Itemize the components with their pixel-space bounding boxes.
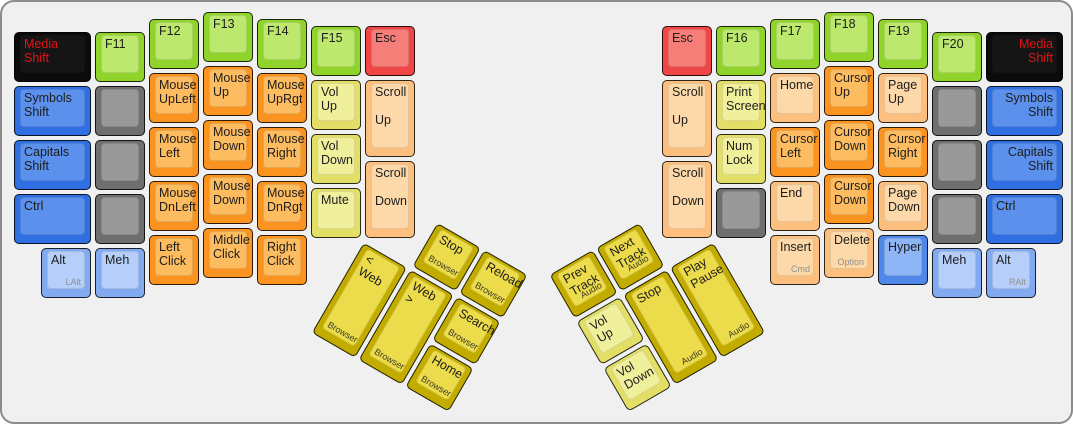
key-f15[interactable]: F15 (311, 26, 361, 76)
keycap-sublabel: Cmd (791, 265, 810, 274)
key-left-click[interactable]: Left Click (149, 235, 199, 285)
key-meh-right[interactable]: Meh (932, 248, 982, 298)
keycap-label: Alt (51, 253, 81, 267)
keycap-surface: Media Shift (992, 35, 1057, 73)
keycap-label: Meh (105, 253, 135, 267)
keycap-surface: F15 (317, 29, 355, 67)
keycap-sublabel: Browser (419, 374, 452, 398)
keycap-label: Stop (437, 232, 470, 259)
keycap-surface: Scroll Up (371, 83, 409, 148)
keycap-surface: Page Up (884, 76, 922, 114)
key-f13[interactable]: F13 (203, 12, 253, 62)
keycap-label: F15 (321, 31, 351, 45)
key-f20[interactable]: F20 (932, 32, 982, 82)
key-insert[interactable]: InsertCmd (770, 235, 820, 285)
keycap-label: Vol Down (321, 139, 351, 167)
keycap-label: Cursor Left (780, 132, 810, 160)
keycap-label: Vol Up (321, 85, 351, 113)
keycap-label: Scroll Down (672, 166, 702, 208)
key-alt-left[interactable]: AltLAlt (41, 248, 91, 298)
keycap-surface: Home (776, 76, 814, 114)
keycap-surface: Cursor Down (830, 177, 868, 215)
keycap-label: Home (780, 78, 810, 92)
key-mouse-down-2[interactable]: Mouse Down (203, 174, 253, 224)
keycap-label: F18 (834, 17, 864, 31)
key-blank[interactable] (95, 194, 145, 244)
keycap-surface: StopBrowser (422, 228, 474, 280)
key-media-shift-left[interactable]: Media Shift (14, 32, 91, 82)
key-esc-right[interactable]: Esc (662, 26, 712, 76)
key-f17[interactable]: F17 (770, 19, 820, 69)
keycap-label: Num Lock (726, 139, 756, 167)
key-mouse-right[interactable]: Mouse Right (257, 127, 307, 177)
keycap-surface: Right Click (263, 238, 301, 276)
keycap-label: Scroll Down (375, 166, 405, 208)
keycap-surface: AltRAlt (992, 251, 1030, 289)
key-cursor-down-2[interactable]: Cursor Down (824, 174, 874, 224)
key-end[interactable]: End (770, 181, 820, 231)
key-cursor-up[interactable]: Cursor Up (824, 66, 874, 116)
keycap-surface: Next TrackAudio (603, 228, 655, 280)
keycap-label: Meh (942, 253, 972, 267)
keycap-label: F20 (942, 37, 972, 51)
key-mouse-dnrgt[interactable]: Mouse DnRgt (257, 181, 307, 231)
key-esc-left[interactable]: Esc (365, 26, 415, 76)
keycap-label: Cursor Right (888, 132, 918, 160)
keycap-surface: F19 (884, 22, 922, 60)
key-f12[interactable]: F12 (149, 19, 199, 69)
keycap-surface (101, 143, 139, 181)
keycap-sublabel: Browser (446, 327, 479, 351)
keycap-label: Cursor Down (834, 179, 864, 207)
keycap-surface: HomeBrowser (415, 349, 467, 401)
key-f11[interactable]: F11 (95, 32, 145, 82)
keycap-label: Mouse Down (213, 179, 243, 207)
keycap-surface: F12 (155, 22, 193, 60)
keycap-surface: F11 (101, 35, 139, 73)
keycap-surface: DeleteOption (830, 231, 868, 269)
keycap-surface: Scroll Down (668, 164, 706, 229)
keycap-label: Cursor Down (834, 125, 864, 153)
keycap-sublabel: Audio (727, 320, 751, 339)
keycap-surface: Scroll Down (371, 164, 409, 229)
keycap-label: F13 (213, 17, 243, 31)
keycap-surface: Mouse Up (209, 69, 247, 107)
key-mouse-down[interactable]: Mouse Down (203, 120, 253, 170)
keycap-label: Mouse DnRgt (267, 186, 297, 214)
keycap-label: Reload (483, 259, 516, 286)
key-f18[interactable]: F18 (824, 12, 874, 62)
key-blank[interactable] (716, 188, 766, 238)
keycap-surface: ReloadBrowser (469, 255, 521, 307)
keycap-surface: Cursor Right (884, 130, 922, 168)
keycap-surface: Mouse UpLeft (155, 76, 193, 114)
keycap-label: Media Shift (24, 37, 81, 65)
key-scroll-down-right[interactable]: Scroll Down (662, 161, 712, 238)
keycap-label: Mute (321, 193, 351, 207)
keycap-surface: Vol Down (610, 349, 662, 401)
keycap-label: F11 (105, 37, 135, 51)
keycap-sublabel: Audio (680, 347, 704, 366)
keycap-label: Mouse UpLeft (159, 78, 189, 106)
keycap-label: Ctrl (24, 199, 81, 213)
keycap-surface: Cursor Up (830, 69, 868, 107)
keycap-surface: F20 (938, 35, 976, 73)
keycap-surface (722, 191, 760, 229)
keycap-surface: F17 (776, 22, 814, 60)
keycap-label: Right Click (267, 240, 297, 268)
keycap-label: Home (429, 352, 462, 379)
key-print-screen[interactable]: Print Screen (716, 80, 766, 130)
keycap-surface: Num Lock (722, 137, 760, 175)
keyboard-panel: Media ShiftF11F12F13F14F15EscSymbols Shi… (0, 0, 1073, 424)
keycap-surface: Symbols Shift (20, 89, 85, 127)
screenshot-root: { "keyboard": { "description_title": "Er… (0, 0, 1073, 424)
keycap-surface: AltLAlt (47, 251, 85, 289)
keycap-surface: Capitals Shift (20, 143, 85, 181)
key-f14[interactable]: F14 (257, 19, 307, 69)
key-cursor-down[interactable]: Cursor Down (824, 120, 874, 170)
keycap-surface: F18 (830, 15, 868, 53)
keycap-label: Cursor Up (834, 71, 864, 99)
keycap-label: Vol Down (615, 352, 655, 391)
keycap-label: Mouse Right (267, 132, 297, 160)
keycap-label: Hyper (888, 240, 918, 254)
key-mouse-uprgt[interactable]: Mouse UpRgt (257, 73, 307, 123)
keycap-surface: Scroll Up (668, 83, 706, 148)
keycap-surface: End (776, 184, 814, 222)
keycap-surface: Mouse Down (209, 123, 247, 161)
key-blank[interactable] (95, 140, 145, 190)
keycap-surface: Mouse Right (263, 130, 301, 168)
keycap-surface: Ctrl (992, 197, 1057, 235)
keycap-surface: Left Click (155, 238, 193, 276)
keycap-label: Stop (634, 279, 667, 306)
key-alt-right[interactable]: AltRAlt (986, 248, 1036, 298)
keycap-sublabel: Browser (373, 347, 406, 371)
key-page-up[interactable]: Page Up (878, 73, 928, 123)
keycap-surface (938, 197, 976, 235)
key-scroll-down-left[interactable]: Scroll Down (365, 161, 415, 238)
keycap-label: F16 (726, 31, 756, 45)
key-media-shift-right[interactable]: Media Shift (986, 32, 1063, 82)
keycap-label: Esc (375, 31, 405, 45)
key-cursor-left[interactable]: Cursor Left (770, 127, 820, 177)
key-mouse-dnleft[interactable]: Mouse DnLeft (149, 181, 199, 231)
keycap-label: Mouse Down (213, 125, 243, 153)
keycap-label: Symbols Shift (24, 91, 81, 119)
keycap-surface: Cursor Down (830, 123, 868, 161)
keycap-label: End (780, 186, 810, 200)
keycap-sublabel: Browser (326, 320, 359, 344)
keycap-label: Capitals Shift (24, 145, 81, 173)
keycap-label: F19 (888, 24, 918, 38)
keycap-surface: Hyper (884, 238, 922, 276)
keycap-label: Insert (780, 240, 810, 254)
key-mouse-upleft[interactable]: Mouse UpLeft (149, 73, 199, 123)
keycap-surface: Vol Down (317, 137, 355, 175)
keycap-surface: Mouse DnLeft (155, 184, 193, 222)
key-blank[interactable] (95, 86, 145, 136)
keycap-surface: Vol Up (317, 83, 355, 121)
key-scroll-up-left[interactable]: Scroll Up (365, 80, 415, 157)
keycap-label: Delete (834, 233, 864, 247)
key-mouse-up[interactable]: Mouse Up (203, 66, 253, 116)
keycap-label: Scroll Up (672, 85, 702, 127)
keycap-label: Scroll Up (375, 85, 405, 127)
keycap-sublabel: Browser (427, 253, 460, 277)
keycap-label: Page Up (888, 78, 918, 106)
keycap-surface: Print Screen (722, 83, 760, 121)
keycap-sublabel: RAlt (1009, 278, 1026, 287)
key-symbols-shift-left[interactable]: Symbols Shift (14, 86, 91, 136)
keycap-surface: F13 (209, 15, 247, 53)
keycap-surface: Middle Click (209, 231, 247, 269)
key-ctrl-right[interactable]: Ctrl (986, 194, 1063, 244)
key-delete[interactable]: DeleteOption (824, 228, 874, 278)
key-home[interactable]: Home (770, 73, 820, 123)
keycap-surface: InsertCmd (776, 238, 814, 276)
keycap-surface: Mute (317, 191, 355, 229)
key-blank[interactable] (932, 86, 982, 136)
keycap-label: Mouse Up (213, 71, 243, 99)
keycap-surface: Mouse Left (155, 130, 193, 168)
keycap-surface: Ctrl (20, 197, 85, 235)
keycap-surface (938, 89, 976, 127)
keycap-surface: F16 (722, 29, 760, 67)
keycap-surface (101, 89, 139, 127)
key-scroll-up-right[interactable]: Scroll Up (662, 80, 712, 157)
keycap-surface: Prev TrackAudio (556, 255, 608, 307)
key-meh-left[interactable]: Meh (95, 248, 145, 298)
keycap-surface: Cursor Left (776, 130, 814, 168)
keycap-label: Ctrl (996, 199, 1053, 213)
key-vol-up-left[interactable]: Vol Up (311, 80, 361, 130)
keycap-label: F17 (780, 24, 810, 38)
keycap-surface (938, 143, 976, 181)
key-hyper[interactable]: Hyper (878, 235, 928, 285)
keycap-label: Esc (672, 31, 702, 45)
keycap-surface: Mouse DnRgt (263, 184, 301, 222)
key-vol-down-left[interactable]: Vol Down (311, 134, 361, 184)
keycap-label: Play Pause (681, 252, 721, 291)
keycap-surface: Media Shift (20, 35, 85, 73)
keycap-label: F12 (159, 24, 189, 38)
keycap-label: Middle Click (213, 233, 243, 261)
key-middle-click[interactable]: Middle Click (203, 228, 253, 278)
key-mouse-left[interactable]: Mouse Left (149, 127, 199, 177)
keycap-surface: Meh (101, 251, 139, 289)
keycap-surface: Esc (668, 29, 706, 67)
keycap-label: Media Shift (996, 37, 1053, 65)
keycap-label: Mouse Left (159, 132, 189, 160)
keycap-label: < Web (356, 252, 396, 291)
key-num-lock[interactable]: Num Lock (716, 134, 766, 184)
key-blank[interactable] (932, 140, 982, 190)
keycap-label: Capitals Shift (996, 145, 1053, 173)
keycap-surface: Mouse Down (209, 177, 247, 215)
key-right-click[interactable]: Right Click (257, 235, 307, 285)
keycap-sublabel: LAlt (65, 278, 81, 287)
keycap-label: Symbols Shift (996, 91, 1053, 119)
keycap-label: Alt (996, 253, 1026, 267)
keycap-surface: Page Down (884, 184, 922, 222)
keycap-label: Vol Up (588, 306, 628, 345)
key-mute[interactable]: Mute (311, 188, 361, 238)
key-ctrl-left[interactable]: Ctrl (14, 194, 91, 244)
key-f19[interactable]: F19 (878, 19, 928, 69)
keycap-label: Web > (403, 279, 443, 318)
key-capitals-shift-left[interactable]: Capitals Shift (14, 140, 91, 190)
keycap-surface: Capitals Shift (992, 143, 1057, 181)
keycap-sublabel: Option (837, 258, 864, 267)
keycap-label: Mouse DnLeft (159, 186, 189, 214)
keycap-surface (101, 197, 139, 235)
key-capitals-shift-right[interactable]: Capitals Shift (986, 140, 1063, 190)
keycap-label: Print Screen (726, 85, 756, 113)
keycap-surface: Meh (938, 251, 976, 289)
keycap-surface: F14 (263, 22, 301, 60)
keycap-sublabel: Browser (473, 280, 506, 304)
key-blank[interactable] (932, 194, 982, 244)
keycap-label: Left Click (159, 240, 189, 268)
keycap-label: Search (456, 306, 489, 333)
key-page-down[interactable]: Page Down (878, 181, 928, 231)
keycap-surface: SearchBrowser (442, 302, 494, 354)
key-cursor-right[interactable]: Cursor Right (878, 127, 928, 177)
key-symbols-shift-right[interactable]: Symbols Shift (986, 86, 1063, 136)
key-f16[interactable]: F16 (716, 26, 766, 76)
keycap-label: Page Down (888, 186, 918, 214)
keycap-surface: Symbols Shift (992, 89, 1057, 127)
keycap-surface: Vol Up (583, 302, 635, 354)
keycap-label: F14 (267, 24, 297, 38)
keycap-surface: Esc (371, 29, 409, 67)
keycap-surface: Mouse UpRgt (263, 76, 301, 114)
keycap-label: Mouse UpRgt (267, 78, 297, 106)
